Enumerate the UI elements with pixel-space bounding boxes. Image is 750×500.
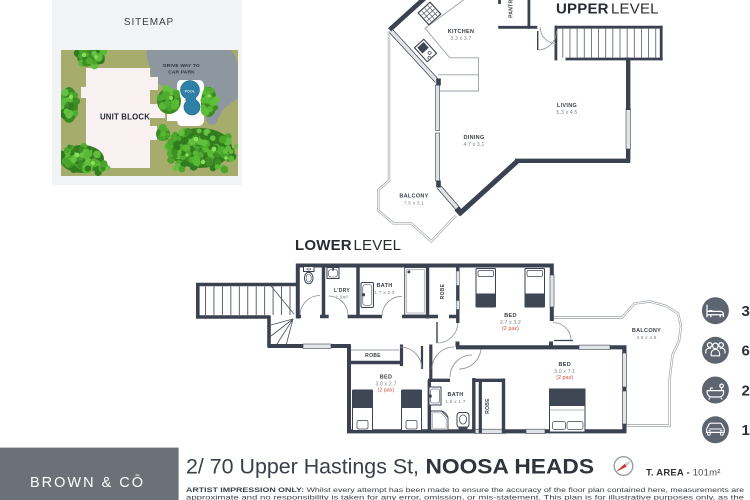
svg-text:3: 3	[742, 303, 750, 320]
svg-text:1: 1	[742, 422, 750, 439]
svg-text:ROBE: ROBE	[440, 283, 446, 299]
svg-text:1.7 x 2.3: 1.7 x 2.3	[374, 290, 394, 296]
svg-text:4.7 x 3.1: 4.7 x 3.1	[464, 142, 485, 148]
svg-text:T. AREA - 101m²: T. AREA - 101m²	[646, 468, 721, 479]
svg-text:NOOSA HEADS: NOOSA HEADS	[426, 456, 595, 479]
svg-text:UPPER: UPPER	[556, 1, 609, 18]
svg-text:DRIVE WAY TO: DRIVE WAY TO	[163, 63, 200, 69]
svg-text:BALCONY: BALCONY	[632, 328, 661, 334]
svg-text:LEVEL: LEVEL	[611, 1, 659, 18]
svg-text:(2 pax): (2 pax)	[556, 375, 573, 381]
svg-text:BED: BED	[380, 375, 393, 381]
svg-text:1.8 x 1.7: 1.8 x 1.7	[445, 399, 465, 405]
svg-text:LOWER: LOWER	[295, 237, 352, 254]
svg-text:BATH: BATH	[376, 283, 392, 289]
svg-text:4.6 x 4.6: 4.6 x 4.6	[636, 335, 656, 341]
svg-text:BALCONY: BALCONY	[399, 194, 428, 200]
svg-text:KITCHEN: KITCHEN	[448, 29, 475, 35]
svg-text:DINING: DINING	[463, 135, 484, 141]
svg-text:PANTRY: PANTRY	[509, 0, 515, 18]
svg-text:ARTIST IMPRESSION ONLY: Whilst: ARTIST IMPRESSION ONLY: Whilst every att…	[186, 487, 745, 494]
svg-text:SITEMAP: SITEMAP	[124, 17, 174, 28]
svg-text:(2 pax): (2 pax)	[378, 388, 395, 394]
svg-text:BED: BED	[559, 362, 572, 368]
svg-text:5.3 x 4.5: 5.3 x 4.5	[557, 110, 578, 116]
svg-text:6: 6	[742, 343, 750, 360]
svg-text:7.5 x 3.1: 7.5 x 3.1	[404, 201, 424, 207]
svg-text:BATH: BATH	[447, 392, 463, 398]
svg-text:2/ 70 Upper Hastings St,: 2/ 70 Upper Hastings St,	[186, 456, 419, 479]
svg-text:approximate and no responsibil: approximate and no responsibility is tak…	[186, 495, 745, 500]
svg-text:LEVEL: LEVEL	[354, 237, 402, 254]
svg-text:1.9m²: 1.9m²	[336, 295, 349, 300]
svg-text:CAR PARK: CAR PARK	[168, 70, 195, 76]
svg-text:ROBE: ROBE	[365, 353, 381, 359]
svg-text:ROBE: ROBE	[485, 398, 491, 414]
svg-text:(2 pax): (2 pax)	[502, 326, 519, 332]
svg-text:LIVING: LIVING	[557, 103, 577, 109]
svg-text:UNIT BLOCK: UNIT BLOCK	[100, 113, 150, 122]
svg-text:L'DRY: L'DRY	[334, 288, 350, 294]
svg-text:BROWN & CŌ: BROWN & CŌ	[30, 475, 145, 491]
svg-text:BED: BED	[504, 313, 517, 319]
svg-text:2: 2	[742, 382, 750, 399]
svg-text:3.3 x 3.7: 3.3 x 3.7	[451, 36, 472, 42]
svg-text:POOL: POOL	[185, 90, 196, 94]
